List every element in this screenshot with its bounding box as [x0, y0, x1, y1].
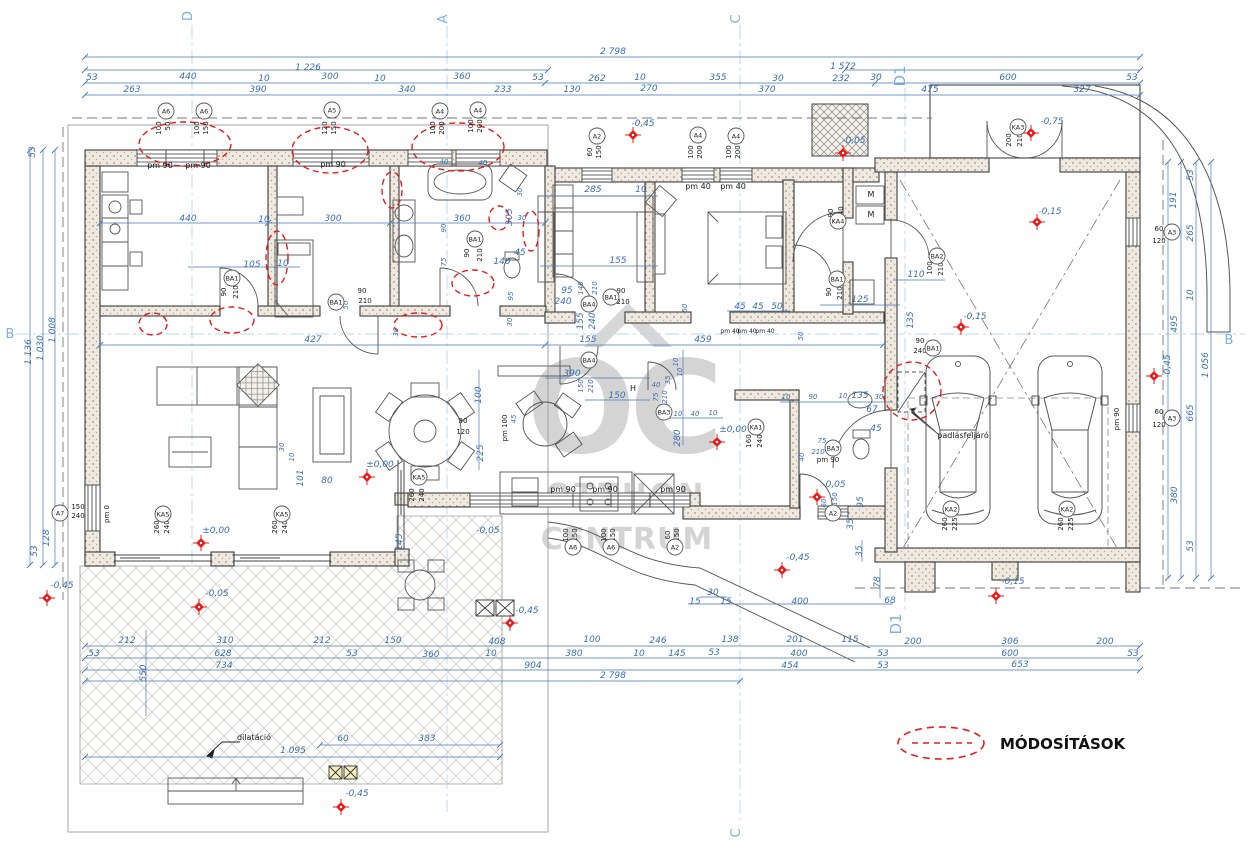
marker-ka2: KA2	[943, 501, 959, 517]
note-label: pm 40	[737, 328, 756, 335]
dimension-label: 35	[846, 518, 856, 530]
note-label: 50	[164, 122, 172, 131]
note-label: 150	[595, 145, 603, 158]
elevation-label: -0,15	[1038, 207, 1062, 217]
marker-a4: A4	[690, 127, 706, 143]
entry-canopy	[930, 85, 1140, 158]
dimension-label: 30	[870, 73, 882, 83]
note-label: 120	[1152, 421, 1165, 429]
elevation-label: -0,05	[822, 480, 846, 490]
axis-label-c: C	[729, 14, 744, 23]
marker-a4: A4	[432, 103, 448, 119]
note-label: H	[630, 384, 636, 393]
note-label: 90	[825, 288, 833, 297]
dimension-label: 340	[398, 85, 415, 95]
svg-text:KA5: KA5	[276, 510, 289, 518]
dimension-label: 734	[215, 661, 232, 671]
marker-ka4: KA4	[830, 213, 846, 229]
dimension-label: 67	[866, 405, 878, 415]
dimension-label: 155	[609, 256, 626, 266]
dimension-label: 53	[88, 649, 100, 659]
axis-label-c: C	[729, 828, 744, 837]
dimension-label: 212	[313, 636, 330, 646]
dimension-label: 95	[507, 291, 515, 300]
dimension-label: 360	[453, 72, 470, 82]
dimension-label: 10	[709, 409, 718, 417]
dimension-label: 1 030	[36, 335, 46, 361]
dimension-label: 30	[278, 442, 286, 451]
note-label: 260	[1057, 517, 1065, 530]
svg-text:A4: A4	[436, 107, 445, 115]
marker-ba1: BA1	[925, 340, 941, 356]
note-label: pm 90	[550, 485, 576, 494]
dimension-label: 95	[856, 496, 866, 508]
dimension-label: 1 008	[48, 317, 58, 343]
elevation-label: ±0,00	[366, 460, 394, 470]
axis-label-a: A	[436, 14, 451, 23]
note-label: 60	[664, 531, 672, 540]
note-label: 90	[220, 288, 228, 297]
elevation-label: -0,05	[476, 526, 500, 536]
elevation-label: -0,45	[515, 606, 539, 616]
note-label: pm 100	[501, 415, 509, 442]
note-label: pm 40	[755, 328, 774, 335]
dimension-label: 50	[797, 331, 805, 340]
note-label: 210	[358, 297, 371, 305]
dimension-label: 40	[440, 158, 449, 166]
dimension-label: 60	[337, 734, 349, 744]
svg-text:A3: A3	[1168, 228, 1177, 236]
dimension-label: 440	[179, 214, 196, 224]
red-survey-point	[333, 799, 349, 815]
dimension-label: 140	[577, 281, 585, 295]
note-label: 120	[1152, 237, 1165, 245]
marker-ka5: KA5	[155, 506, 171, 522]
note-label: 30	[459, 417, 468, 425]
modification-ellipse	[452, 270, 494, 296]
dimension-label: 495	[1170, 315, 1180, 332]
note-label: 240	[418, 488, 426, 501]
dimension-label: 53	[1186, 169, 1196, 181]
dimension-label: 225	[476, 444, 486, 461]
svg-text:A2: A2	[829, 509, 838, 517]
axis-label-b: B	[6, 327, 15, 342]
dimension-label: 53	[346, 649, 358, 659]
floor-plan-canvas: OC OTTHON CENTRUM	[0, 0, 1256, 854]
note-label: pm 40	[720, 182, 746, 191]
dimension-label: 10	[782, 393, 791, 401]
svg-text:A4: A4	[474, 106, 483, 114]
dimension-label: 262	[588, 74, 605, 84]
dimension-label: 233	[494, 85, 511, 95]
axis-label-b: B	[1225, 333, 1234, 348]
dimension-label: 270	[640, 84, 657, 94]
dimension-label: 240	[554, 297, 571, 307]
dimension-label: 45	[870, 424, 882, 434]
marker-ba1: BA1	[224, 270, 240, 286]
dimension-label: 125	[851, 295, 868, 305]
svg-text:KA5: KA5	[157, 510, 170, 518]
svg-text:A6: A6	[162, 107, 171, 115]
dimension-label: 150	[831, 492, 839, 506]
note-label: 200	[1005, 133, 1013, 146]
dimension-label: 15	[720, 597, 732, 607]
red-survey-point	[502, 615, 518, 631]
dimension-label: 10	[676, 367, 684, 376]
marker-a7: A7	[52, 505, 68, 521]
dimension-label: 45	[734, 302, 746, 312]
dimension-label: 45	[752, 302, 764, 312]
dimension-label: 53	[1127, 649, 1139, 659]
elevation-label: -0,45	[1163, 354, 1173, 378]
dimension-label: 53	[86, 73, 98, 83]
dimension-label: 53	[28, 146, 38, 158]
dimension-label: 628	[214, 649, 231, 659]
marker-ka2: KA2	[1059, 501, 1075, 517]
axis-label-d1: D1	[887, 613, 905, 634]
dimension-label: 110	[907, 270, 924, 280]
note-label: pm 90	[817, 456, 839, 464]
dimension-label: 240	[588, 312, 598, 329]
dimension-label: 1 136	[24, 339, 34, 365]
dimension-label: 10	[674, 410, 683, 418]
svg-text:BA1: BA1	[329, 298, 342, 306]
note-label: pm 90	[1113, 408, 1121, 430]
dimension-label: 459	[694, 335, 711, 345]
note-label: 100	[687, 145, 695, 158]
dimension-label: 90	[440, 223, 448, 232]
dimension-label: 10	[258, 74, 270, 84]
elevation-label: -0,05	[205, 589, 229, 599]
dimension-label: 150	[608, 391, 625, 401]
dimension-label: 150	[577, 379, 585, 393]
dimension-label: 145	[395, 533, 405, 550]
dimension-label: 265	[1186, 224, 1196, 241]
dimension-label: 210	[661, 390, 669, 404]
marker-ba1: BA1	[603, 289, 619, 305]
dimension-label: 408	[488, 637, 505, 647]
dimension-label: 305	[505, 208, 515, 225]
note-label: 100	[155, 121, 163, 134]
dimension-label: 40	[798, 452, 806, 461]
dimension-label: 1 056	[1201, 352, 1211, 378]
note-label: 120	[321, 121, 329, 134]
note-label: 260	[271, 520, 279, 533]
dimension-label: 30	[772, 74, 784, 84]
dimension-label: 100	[474, 386, 484, 403]
red-survey-point	[988, 588, 1004, 604]
svg-text:A4: A4	[694, 131, 703, 139]
axis-label-d: D	[181, 11, 196, 21]
red-survey-point	[39, 590, 55, 606]
dimension-label: 45	[510, 414, 518, 423]
legend-label: MÓDOSÍTÁSOK	[1000, 734, 1126, 753]
note-label: 240	[756, 434, 764, 447]
svg-text:A5: A5	[328, 106, 337, 114]
svg-text:A3: A3	[1168, 414, 1177, 422]
note-label: 240	[71, 512, 84, 520]
dimension-label: 400	[790, 649, 807, 659]
dimension-label: 904	[524, 661, 541, 671]
elevation-label: -0,45	[786, 553, 810, 563]
svg-text:A6: A6	[200, 107, 209, 115]
dimension-label: 232	[832, 74, 849, 84]
elevation-label: -0,45	[631, 119, 655, 129]
svg-text:BA1: BA1	[830, 275, 843, 283]
dimension-label: 115	[841, 635, 858, 645]
dimension-label: 475	[921, 85, 938, 95]
dimension-label: 263	[123, 85, 140, 95]
svg-text:A2: A2	[671, 543, 680, 551]
dimension-label: 53	[708, 648, 720, 658]
svg-text:A6: A6	[569, 543, 578, 551]
dimension-label: 30	[506, 317, 514, 326]
dimension-label: 80	[321, 476, 333, 486]
marker-a3: A3	[1164, 410, 1180, 426]
note-label: pm 90	[185, 161, 211, 170]
garage-diagonals	[900, 180, 1120, 553]
svg-text:BA3: BA3	[826, 444, 839, 452]
dimension-label: 50	[771, 302, 783, 312]
dimension-label: 30	[516, 187, 524, 196]
elevation-label: -0,05	[842, 136, 866, 146]
note-label: 200	[696, 145, 704, 158]
note-label: 225	[951, 517, 959, 530]
dimension-label: 101	[296, 469, 306, 486]
note-label: 200	[734, 145, 742, 158]
elevation-label: -0,45	[50, 581, 74, 591]
dimension-label: 191	[1169, 191, 1179, 208]
dimension-label: 1 095	[280, 746, 306, 756]
elevation-label: -0,75	[1040, 117, 1064, 127]
dimension-label: 145	[668, 649, 685, 659]
marker-a2: A2	[825, 505, 841, 521]
dimension-label: 30	[518, 214, 527, 222]
note-label: 100	[467, 119, 475, 132]
note-label: 60	[1155, 408, 1164, 416]
note-label: 90	[463, 249, 471, 258]
marker-ba3: BA3	[656, 404, 672, 420]
marker-a6: A6	[565, 539, 581, 555]
note-label: 200	[476, 119, 484, 132]
dimension-label: 400	[791, 597, 808, 607]
note-label: 225	[1067, 517, 1075, 530]
note-label: 120	[456, 428, 469, 436]
marker-a2: A2	[667, 539, 683, 555]
note-label: 150	[330, 121, 338, 134]
modification-ellipse	[394, 313, 442, 337]
dimension-label: 550	[139, 664, 149, 681]
marker-a6: A6	[196, 103, 212, 119]
svg-text:BA4: BA4	[582, 300, 595, 308]
dimension-label: 310	[216, 636, 233, 646]
note-label: pm 90	[147, 161, 173, 170]
legend: MÓDOSÍTÁSOK	[898, 727, 1126, 759]
marker-ka5: KA5	[274, 506, 290, 522]
svg-text:BA3: BA3	[657, 408, 670, 416]
dimension-label: 212	[118, 636, 135, 646]
marker-ka1: KA1	[748, 419, 764, 435]
marker-ba2: BA2	[929, 248, 945, 264]
svg-text:KA5: KA5	[413, 473, 426, 481]
dimension-label: 135	[851, 391, 868, 401]
dimension-label: 60	[820, 498, 828, 507]
dimension-label: 600	[999, 73, 1016, 83]
dimension-label: 40	[691, 410, 700, 418]
dimension-label: 30	[392, 327, 400, 336]
elevation-label: ±0,00	[202, 526, 230, 536]
red-survey-point	[625, 127, 641, 143]
svg-text:KA2: KA2	[1061, 505, 1074, 513]
svg-text:KA2: KA2	[945, 505, 958, 513]
red-survey-point	[193, 535, 209, 551]
dimension-label: 200	[904, 637, 921, 647]
dimension-label: 10	[277, 259, 289, 269]
red-survey-point	[774, 562, 790, 578]
dimension-label: 327	[1073, 85, 1090, 95]
marker-ka5: KA5	[411, 469, 427, 485]
dimension-label: 53	[1126, 73, 1138, 83]
dimension-label: 128	[42, 529, 52, 546]
dimension-label: 246	[649, 636, 666, 646]
dimension-label: 53	[1186, 540, 1196, 552]
dimension-label: 210	[591, 281, 599, 295]
note-label: pm 40	[685, 182, 711, 191]
dimension-label: 53	[30, 545, 40, 557]
note-label: 100	[725, 145, 733, 158]
svg-text:A7: A7	[56, 509, 65, 517]
dimension-label: 68	[884, 596, 896, 606]
marker-a4: A4	[470, 102, 486, 118]
marker-ba3: BA3	[825, 440, 841, 456]
marker-ba1: BA1	[467, 231, 483, 247]
dimension-label: 78	[873, 576, 883, 588]
dimension-label: 210	[811, 448, 825, 456]
dimension-label: 380	[565, 649, 582, 659]
note-label: pm 90	[320, 160, 346, 169]
dimension-label: 155	[579, 335, 596, 345]
floor-plan-sheet: OC OTTHON CENTRUM	[0, 0, 1256, 854]
dimension-label: 150	[384, 636, 401, 646]
dimension-label: 653	[1011, 660, 1028, 670]
dimension-label: 390	[249, 85, 266, 95]
dimension-label: 10	[1186, 289, 1196, 301]
marker-a5: A5	[324, 102, 340, 118]
dimension-label: 2 798	[600, 47, 626, 57]
red-survey-point	[359, 469, 375, 485]
note-label: 210	[232, 285, 240, 298]
elevation-label: -0,15	[1001, 577, 1025, 587]
dimension-label: 35	[664, 375, 672, 384]
dimension-label: 10	[258, 215, 270, 225]
note-label: 260	[408, 488, 416, 501]
dimension-label: 600	[1001, 649, 1018, 659]
note-label: 210	[836, 286, 844, 299]
note-label: 160	[745, 434, 753, 447]
chimney-hatch	[812, 104, 868, 156]
dimension-label: 50	[681, 303, 689, 312]
dimension-label: 10	[672, 357, 680, 366]
marker-ba1: BA1	[829, 271, 845, 287]
red-survey-point	[1146, 368, 1162, 384]
dimension-label: 440	[179, 72, 196, 82]
dimension-label: 200	[1096, 637, 1113, 647]
note-label: M	[868, 190, 875, 199]
dimension-label: 210	[587, 379, 595, 393]
axis-label-d1: D1	[891, 65, 909, 86]
marker-a2: A2	[589, 128, 605, 144]
dimension-label: 140	[493, 257, 510, 267]
dimension-label: 53	[877, 649, 889, 659]
dimension-label: 105	[243, 260, 260, 270]
svg-text:BA4: BA4	[582, 356, 595, 364]
svg-text:A6: A6	[607, 543, 616, 551]
dimension-label: 53	[877, 661, 889, 671]
dimension-label: 40	[652, 381, 661, 389]
note-label: 260	[941, 517, 949, 530]
driveway-arcs	[1062, 86, 1230, 332]
marker-ba4: BA4	[581, 352, 597, 368]
note-label: 200	[438, 121, 446, 134]
dimension-label: 355	[709, 73, 726, 83]
dimension-label: 10	[288, 452, 296, 461]
elevation-label: -0,45	[345, 789, 369, 799]
svg-text:KA4: KA4	[832, 217, 845, 225]
note-label: 210	[476, 248, 484, 261]
dimension-label: 90	[809, 393, 818, 401]
dimension-label: 306	[1001, 637, 1018, 647]
dimension-label: 280	[673, 429, 683, 446]
dimension-label: 360	[422, 650, 439, 660]
svg-text:BA1: BA1	[468, 235, 481, 243]
note-label: 150	[202, 121, 210, 134]
dimension-label: 15	[689, 597, 701, 607]
dimension-label: 1 226	[295, 63, 321, 73]
marker-ba4: BA4	[581, 296, 597, 312]
dimension-label: 2 798	[600, 671, 626, 681]
dimension-label: 95	[561, 286, 573, 296]
dimension-label: 30	[707, 588, 719, 598]
note-label: dilatáció	[237, 732, 271, 742]
dimension-label: 10	[633, 649, 645, 659]
note-label: padlásfeljáró	[937, 430, 989, 440]
dimension-label: 53	[532, 73, 544, 83]
watermark-oc: OC	[527, 334, 718, 483]
note-label: 100	[193, 121, 201, 134]
dimension-label: 370	[758, 85, 775, 95]
svg-text:BA1: BA1	[225, 274, 238, 282]
dimension-label: 155	[576, 312, 586, 329]
dimension-label: 360	[453, 214, 470, 224]
car-top-view	[920, 356, 1108, 524]
dimension-label: 130	[563, 85, 580, 95]
note-label: 90	[916, 337, 925, 345]
marker-a3: A3	[1164, 224, 1180, 240]
marker-ba1: BA1	[328, 294, 344, 310]
svg-text:KA1: KA1	[750, 423, 763, 431]
note-label: 60	[1155, 225, 1164, 233]
svg-text:KA3: KA3	[1012, 123, 1025, 131]
dimension-label: 30	[875, 393, 884, 401]
dimension-label: 10	[485, 649, 497, 659]
svg-text:BA2: BA2	[930, 252, 943, 260]
dimension-label: 75	[652, 392, 660, 401]
marker-a6: A6	[158, 103, 174, 119]
svg-text:BA1: BA1	[926, 344, 939, 352]
dimension-label: 454	[781, 661, 798, 671]
dimension-label: 1 572	[830, 62, 856, 72]
note-label: 100	[429, 121, 437, 134]
